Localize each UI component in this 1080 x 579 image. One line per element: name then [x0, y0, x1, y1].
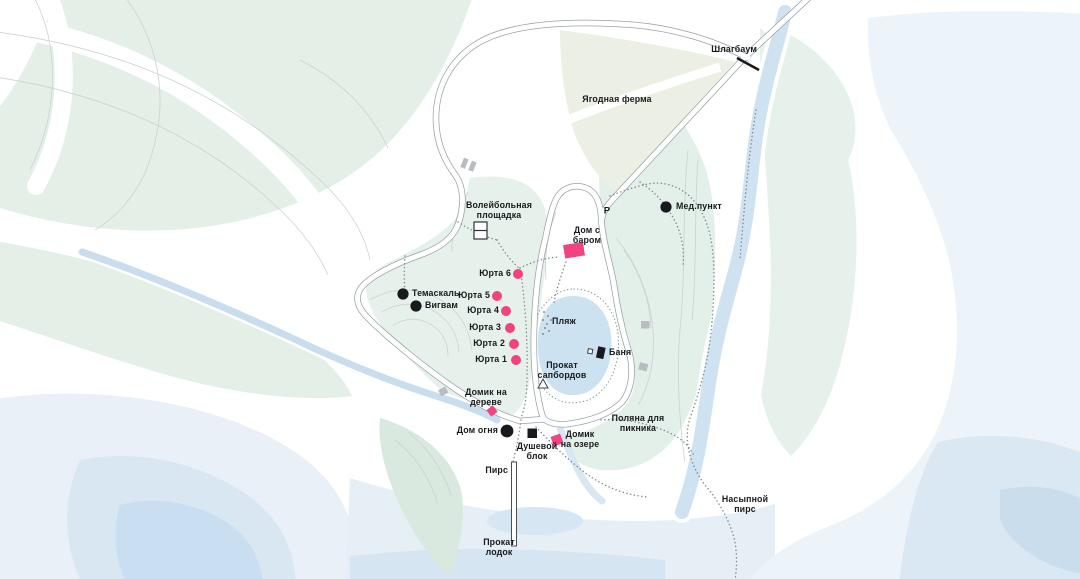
resort-map: Шлагбаум Ягодная ферма Мед.пункт Р Волей… [0, 0, 1080, 579]
label-boat-rental: Прокат лодок [483, 538, 515, 558]
banya-small-icon [588, 349, 593, 354]
label-wigwam: Вигвам [425, 301, 458, 311]
shower-block-marker [528, 429, 538, 439]
label-lake-house: Домик на озере [561, 430, 600, 450]
label-nasypnoy-pirs: Насыпной пирс [722, 495, 768, 515]
yurta3-marker [505, 323, 515, 333]
volleyball-court-icon [474, 222, 487, 239]
label-temaskal: Темаскаль [412, 289, 460, 299]
label-berry-farm: Ягодная ферма [582, 95, 651, 105]
temaskal-marker [397, 288, 408, 299]
pier-structure [512, 462, 517, 546]
yurta1-marker [511, 355, 521, 365]
label-plyazh: Пляж [552, 317, 576, 327]
label-yurta2: Юрта 2 [473, 339, 505, 349]
label-picnic-glade: Поляна для пикника [612, 414, 665, 434]
yurta4-marker [501, 306, 511, 316]
map-canvas [0, 0, 1080, 579]
label-pirs: Пирс [485, 466, 508, 476]
yurta5-marker [492, 291, 502, 301]
label-yurta6: Юрта 6 [479, 269, 511, 279]
label-volleyball: Волейбольная площадка [466, 201, 532, 221]
label-medpunkt: Мед.пункт [676, 202, 722, 212]
dom-ognya-marker [501, 425, 514, 438]
label-treehouse: Домик на дереве [465, 388, 507, 408]
wigwam-marker [410, 300, 421, 311]
yurta6-marker [513, 269, 523, 279]
label-parking: Р [604, 207, 611, 218]
label-dom-ognya: Дом огня [457, 426, 498, 436]
label-dom-s-barom: Дом с баром [573, 226, 601, 246]
yurta2-marker [509, 339, 519, 349]
label-shlagbaum: Шлагбаум [711, 45, 757, 55]
label-shower-block: Душевой блок [517, 442, 558, 462]
label-banya: Баня [609, 348, 631, 358]
label-yurta5: Юрта 5 [458, 291, 490, 301]
medpunkt-marker [660, 201, 671, 212]
label-yurta4: Юрта 4 [467, 306, 499, 316]
label-yurta3: Юрта 3 [469, 323, 501, 333]
label-sup-rental: Прокат сапбордов [538, 361, 587, 381]
label-yurta1: Юрта 1 [475, 355, 507, 365]
